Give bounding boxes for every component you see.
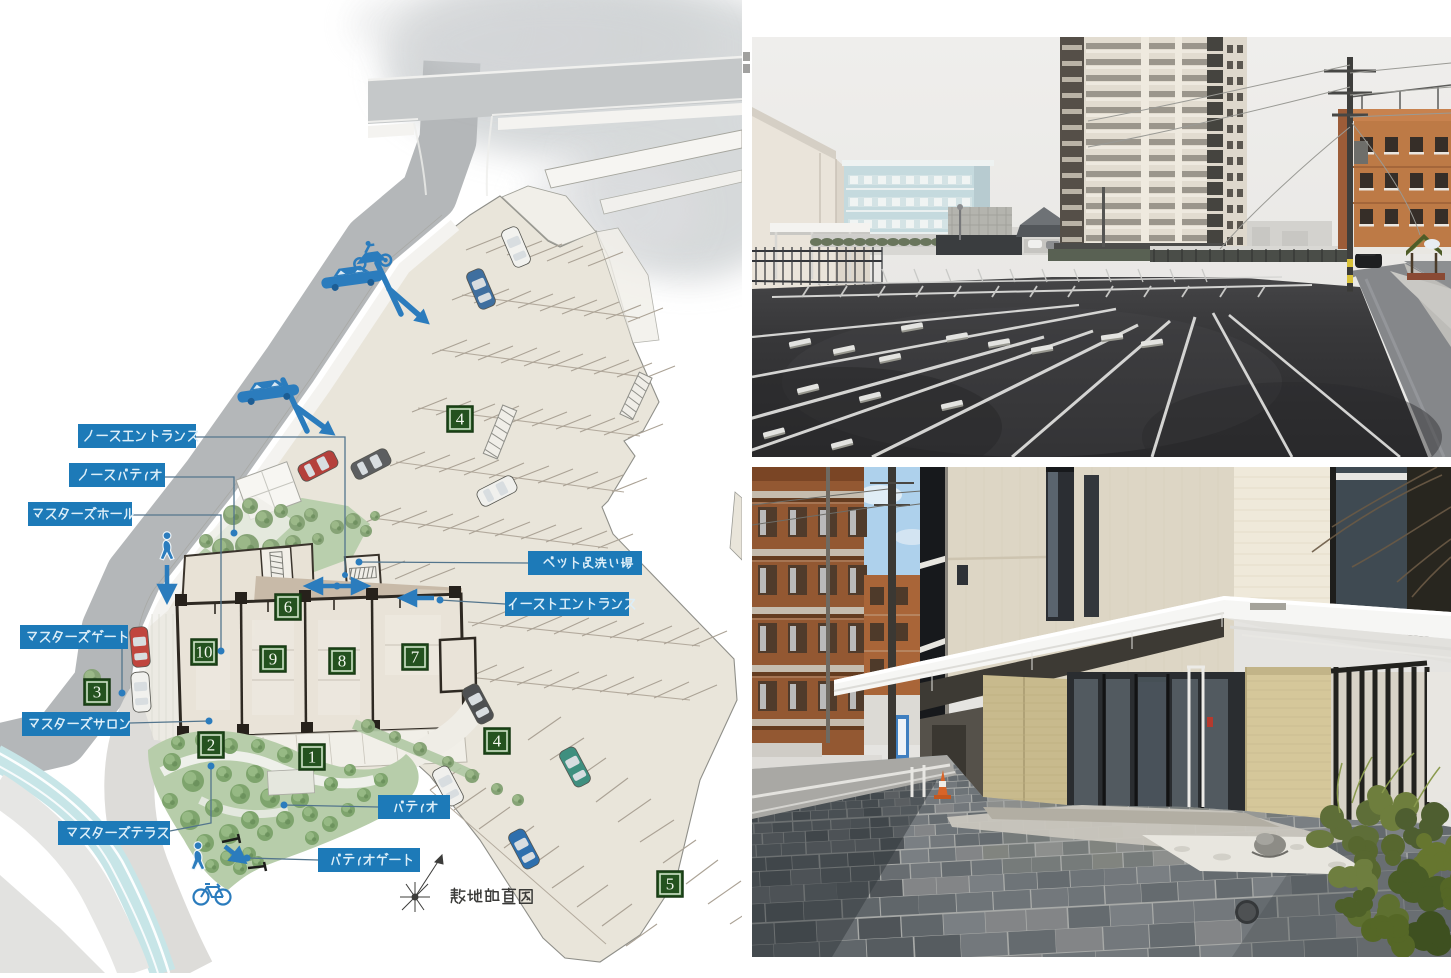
svg-text:4: 4 [456, 410, 465, 429]
svg-text:1: 1 [308, 748, 317, 767]
svg-text:9: 9 [269, 650, 278, 669]
svg-text:6: 6 [284, 598, 293, 617]
svg-text:2: 2 [207, 736, 216, 755]
svg-text:3: 3 [93, 683, 102, 702]
svg-text:8: 8 [338, 652, 347, 671]
svg-text:5: 5 [666, 875, 675, 894]
svg-text:7: 7 [411, 648, 420, 667]
svg-text:4: 4 [493, 732, 502, 751]
svg-text:10: 10 [196, 643, 213, 662]
